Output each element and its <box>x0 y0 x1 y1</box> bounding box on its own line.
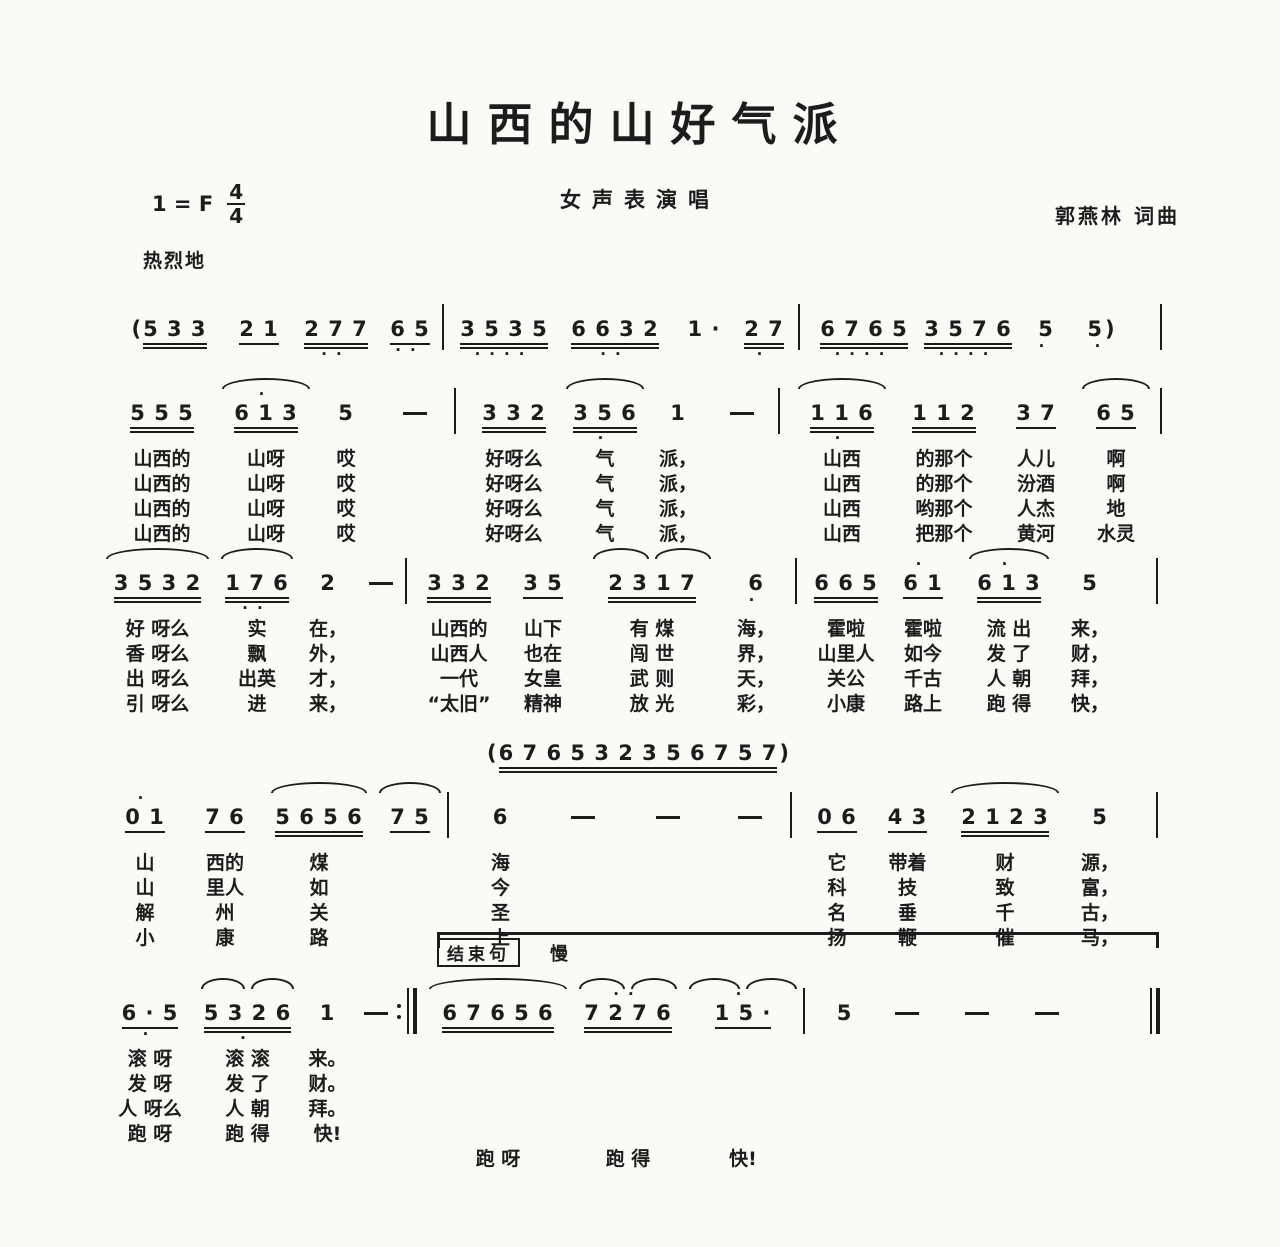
lyric-cell: 山呀 <box>216 497 316 522</box>
octave-dots-below <box>100 603 215 615</box>
ending-phrase-label: 结束句 <box>437 938 520 967</box>
digit-text: 7 5 <box>390 805 430 829</box>
digit-text: 7 2 7 6 <box>584 1001 671 1025</box>
lyric-cell <box>355 1147 397 1172</box>
bar-stroke <box>803 988 805 1034</box>
note-digits: 2 1 2 3 <box>945 805 1065 837</box>
note-group: ·6 1 3 <box>216 376 316 445</box>
lyric-cell: 致 <box>945 876 1065 901</box>
octave-dots-below <box>316 425 376 437</box>
lyric-cell: 才， <box>299 667 357 692</box>
octave-dots-above <box>355 989 397 1001</box>
octave-dots-above <box>499 559 587 571</box>
octave-dots-below <box>1065 829 1135 841</box>
digit-core: 1 1 2 <box>912 401 975 433</box>
lyric-cell: 山下 <box>499 617 587 642</box>
octave-dots-below <box>461 829 540 841</box>
lyric-cell: 气 <box>560 472 650 497</box>
digit-core: 5 <box>1092 805 1108 829</box>
octave-dots-above <box>804 793 870 805</box>
note-digits: 0 1 <box>105 805 185 833</box>
note-digits: 3 7 <box>996 401 1076 429</box>
note-group: 6 7 6 5···· <box>812 292 916 361</box>
octave-dots-below <box>710 819 790 831</box>
ending-phrase-bracket: 结束句慢 <box>437 932 1159 967</box>
octave-dots-above <box>294 305 378 317</box>
digit-core: 1 · <box>688 317 721 341</box>
digit-text: 0 6 <box>817 805 857 829</box>
tempo-marking: 热烈地 <box>143 246 206 273</box>
lyric-cell: 派， <box>650 522 706 547</box>
note-digits: 5 6 5 6 <box>265 805 373 837</box>
digit-text: 6 1 <box>903 571 943 595</box>
digit-text: 6 6 3 2 <box>571 317 658 341</box>
open-paren: ( <box>487 741 497 765</box>
lyric-cell: 彩， <box>717 692 795 717</box>
lyric-cell: 人儿 <box>996 447 1076 472</box>
note-digits: 5 <box>316 401 376 425</box>
lyric-cell: 快! <box>683 1147 803 1172</box>
lyric-cell <box>373 901 447 926</box>
slur-arc <box>221 548 293 559</box>
slur-row <box>996 376 1076 389</box>
octave-dots-below <box>468 433 560 445</box>
octave-dots-above <box>1072 305 1132 317</box>
octave-dots-below <box>224 345 294 357</box>
slur-row <box>376 376 454 389</box>
lyric-cell <box>942 1072 1012 1097</box>
digit-text: 4 3 <box>888 805 928 829</box>
digit-text: 6 7 6 5 3 2 3 5 6 7 5 7 <box>499 741 778 765</box>
digit-core: 2 3 1 7 <box>608 571 695 603</box>
octave-dots-above <box>552 305 678 317</box>
lyric-cell <box>706 447 778 472</box>
dash-note-group <box>540 780 625 831</box>
lyric-cell: 啊 <box>1076 447 1156 472</box>
octave-dots-above <box>1055 559 1125 571</box>
lyric-cell <box>397 1122 423 1147</box>
note-group: 1 1 6· <box>792 376 892 445</box>
barline-glyph <box>405 558 407 604</box>
beam-line <box>912 427 975 429</box>
lyric-cell: 带着 <box>870 851 945 876</box>
lyric-cell: 跑 呀 <box>105 1122 195 1147</box>
lyric-cell: 汾酒 <box>996 472 1076 497</box>
slur-row <box>1020 292 1072 305</box>
digit-core: 6 7 6 5 6 <box>442 1001 553 1033</box>
lyric-cell: 跑 得 <box>195 1122 300 1147</box>
lyric-cell <box>376 472 454 497</box>
lyric-cell: 山呀 <box>216 447 316 472</box>
lyric-cell: 人 朝 <box>195 1097 300 1122</box>
note-digits <box>540 805 625 819</box>
octave-dots-below <box>996 429 1076 441</box>
lyric-cell: 如 <box>265 876 373 901</box>
lyric-cell <box>683 1072 803 1097</box>
slur-row <box>108 376 216 389</box>
slur-arc <box>271 782 367 793</box>
octave-dots-below <box>678 341 730 353</box>
note-group: 1 7 6·· <box>215 546 299 615</box>
lyric-cell: 水灵 <box>1076 522 1156 547</box>
octave-dots-above: · <box>105 793 185 805</box>
digit-core: 5 <box>837 1001 853 1025</box>
lyric-cell <box>817 1047 872 1072</box>
lyric-cell <box>778 497 792 522</box>
lyric-cell <box>573 1097 683 1122</box>
note-group: 6 <box>461 780 540 841</box>
lyric-cell: 州 <box>185 901 265 926</box>
note-digits: 3 5 3 2 <box>100 571 215 603</box>
beam-line <box>275 831 362 833</box>
digit-core: 0 6 <box>817 805 857 833</box>
lyric-cell <box>872 1072 942 1097</box>
octave-dots-above <box>717 559 795 571</box>
digit-core: 2 1 2 3 <box>961 805 1048 837</box>
note-digits: 3 3 2 <box>468 401 560 433</box>
octave-dots-above <box>112 305 224 317</box>
lyric-cell <box>454 472 468 497</box>
bar-stroke <box>1160 304 1162 350</box>
lyric-cell <box>540 851 625 876</box>
octave-dots-above <box>792 389 892 401</box>
note-group: 6 6 5 <box>809 546 883 615</box>
octave-dots-above <box>560 389 650 401</box>
lyric-row-3: 解州关圣名垂千古， <box>105 901 1158 926</box>
note-digits: 1 · <box>678 317 730 341</box>
lyric-cell: 有 煤 <box>587 617 717 642</box>
note-digits: 5 5 5 <box>108 401 216 433</box>
octave-dots-below <box>683 1029 803 1041</box>
slur-row <box>355 976 397 989</box>
barline-glyph <box>1160 304 1162 350</box>
lyric-cell: 名 <box>804 901 870 926</box>
lyric-cell <box>355 1122 397 1147</box>
lyric-cell: 山 <box>105 876 185 901</box>
barline <box>442 292 456 350</box>
octave-dots-below <box>357 585 405 597</box>
slur-row <box>942 976 1012 989</box>
beam-line <box>814 597 877 599</box>
octave-dots-below: · <box>1020 341 1072 353</box>
lyric-cell: 源， <box>1065 851 1135 876</box>
repeat-barline <box>397 976 423 1034</box>
bar-stroke <box>1160 388 1162 434</box>
slur-row <box>587 546 717 559</box>
notation-line: ·0 17 65 6 5 67 560 64 32 1 2 35 <box>105 780 1158 849</box>
digit-core: 4 3 <box>888 805 928 833</box>
octave-dots-below: · <box>105 1029 195 1041</box>
lyric-cell: 千古 <box>883 667 963 692</box>
octave-dots-above <box>587 559 717 571</box>
slur-row <box>215 546 299 559</box>
note-digits: 1 <box>650 401 706 425</box>
digit-text: 3 3 2 <box>482 401 545 425</box>
lyric-cell: 飘 <box>215 642 299 667</box>
barline <box>1160 376 1162 434</box>
lyric-cell: 千 <box>945 901 1065 926</box>
octave-dots-below <box>872 1015 942 1027</box>
note-group: 6 7 6 5 6 <box>423 976 573 1045</box>
lyric-cell: 出 呀么 <box>100 667 215 692</box>
lyric-cell: 发 了 <box>963 642 1055 667</box>
octave-dots-above <box>105 989 195 1001</box>
octave-dots-below <box>945 837 1065 849</box>
digit-text: 5 3 3 <box>143 317 206 341</box>
digit-core: 5 <box>338 401 354 425</box>
octave-dots-below <box>376 415 454 427</box>
lyric-cell: 一代 <box>419 667 499 692</box>
digit-text: 2 7 <box>744 317 784 341</box>
slur-row <box>792 376 892 389</box>
lyric-cell: 滚 呀 <box>105 1047 195 1072</box>
lyric-cell: 富， <box>1065 876 1135 901</box>
octave-dots-below <box>625 819 710 831</box>
slur-row <box>299 546 357 559</box>
lyric-cell <box>300 1147 355 1172</box>
octave-dots-above: · <box>963 559 1055 571</box>
note-group: 1 · <box>678 292 730 353</box>
octave-dots-below <box>419 603 499 615</box>
octave-dots-above <box>423 989 573 1001</box>
note-group: 6· <box>717 546 795 607</box>
slur-row <box>892 376 996 389</box>
digit-core: 6 1 <box>903 571 943 599</box>
lyric-cell <box>790 876 804 901</box>
lyric-cell: 人 朝 <box>963 667 1055 692</box>
octave-dots-above <box>817 989 872 1001</box>
bar-stroke <box>1156 792 1158 838</box>
lyric-cell <box>683 1097 803 1122</box>
lyric-cell <box>357 667 405 692</box>
lyric-cell: 人杰 <box>996 497 1076 522</box>
digit-core: 6 <box>493 805 509 829</box>
barline-glyph <box>454 388 456 434</box>
lyric-cell <box>942 1122 1012 1147</box>
octave-dots-below <box>112 349 224 361</box>
slur-arc <box>746 978 797 989</box>
digit-core: 5 <box>1082 571 1098 595</box>
dash-note-group <box>376 376 454 427</box>
digit-text: 1 1 2 <box>912 401 975 425</box>
lyric-cell: 山西的 <box>108 522 216 547</box>
octave-dots-below <box>185 833 265 845</box>
barline <box>795 546 809 604</box>
lyric-cell <box>942 1047 1012 1072</box>
note-group: 7 6 <box>185 780 265 845</box>
lyric-cell: 地 <box>1076 497 1156 522</box>
octave-dots-below: · <box>730 349 798 361</box>
lyric-cell: 派， <box>650 472 706 497</box>
lyric-cell: 流 出 <box>963 617 1055 642</box>
lyric-cell: 引 呀么 <box>100 692 215 717</box>
octave-dots-above: · <box>216 389 316 401</box>
music-system-3: 3 5 3 21 7 6··23 3 23 52 3 1 76·6 6 5·6 … <box>100 546 1158 717</box>
barline-glyph <box>798 304 800 350</box>
lyric-cell <box>573 1122 683 1147</box>
digit-core: 3 3 2 <box>427 571 490 603</box>
octave-dots-above <box>488 729 788 741</box>
lyric-cell: 出英 <box>215 667 299 692</box>
digit-text: 3 5 7 6 <box>924 317 1011 341</box>
lyric-cell <box>405 617 419 642</box>
lyric-cell: 进 <box>215 692 299 717</box>
lyric-cell: 快， <box>1055 692 1125 717</box>
barline-glyph <box>778 388 780 434</box>
lyric-row-3: 山西的山呀哎好呀么气派，山西哟那个人杰地 <box>108 497 1162 522</box>
octave-dots-below <box>573 1033 683 1045</box>
meter-numerator: 4 <box>229 182 243 202</box>
digit-core: 6 1 3 <box>234 401 297 433</box>
lyric-cell <box>817 1122 872 1147</box>
octave-dots-below: · <box>792 433 892 445</box>
digit-text: 1 · <box>688 317 721 341</box>
beam-line <box>114 597 201 599</box>
note-group: 2 3 1 7 <box>587 546 717 615</box>
digit-core: 6 1 3 <box>977 571 1040 603</box>
beam-line <box>584 1027 671 1029</box>
digit-core <box>730 401 754 415</box>
note-group: 6 · 5· <box>105 976 195 1041</box>
lyric-cell: 天， <box>717 667 795 692</box>
lyric-cell: 里人 <box>185 876 265 901</box>
note-digits: 3 3 2 <box>419 571 499 603</box>
lyric-cell: 外， <box>299 642 357 667</box>
digit-text: 1 5 · <box>715 1001 772 1025</box>
barline-glyph <box>795 558 797 604</box>
lyric-cell <box>778 447 792 472</box>
bar-stroke <box>454 388 456 434</box>
slur-arc <box>951 782 1059 793</box>
octave-dots-above <box>730 305 798 317</box>
note-digits <box>942 1001 1012 1015</box>
slur-row <box>1065 780 1135 793</box>
lyric-cell <box>803 1072 817 1097</box>
octave-dots-above <box>1020 305 1072 317</box>
note-digits <box>706 401 778 415</box>
key-text: 1 = F <box>152 192 213 216</box>
lyric-cell: 今 <box>461 876 540 901</box>
octave-dots-below <box>883 599 963 611</box>
octave-dots-above <box>265 793 373 805</box>
octave-dots-above: · <box>683 989 803 1001</box>
digit-text: 3 5 <box>523 571 563 595</box>
octave-dots-below <box>587 603 717 615</box>
lyric-cell <box>373 851 447 876</box>
slur-row <box>468 376 560 389</box>
slur-row <box>456 292 552 305</box>
note-digits: 6 5 <box>1076 401 1156 429</box>
digit-text: 6 7 6 5 <box>820 317 907 341</box>
lyric-cell <box>803 1147 817 1172</box>
slur-row <box>870 780 945 793</box>
slur-arc <box>689 978 740 989</box>
composer-credit: 郭燕林 词曲 <box>1055 200 1180 229</box>
lyric-cell <box>405 667 419 692</box>
slur-row <box>1012 976 1082 989</box>
note-digits: 7 6 <box>185 805 265 833</box>
digit-text: 3 7 <box>1016 401 1056 425</box>
lyric-cell: 界， <box>717 642 795 667</box>
lyric-row-2: 山西的山呀哎好呀么气派，山西的那个汾酒啊 <box>108 472 1162 497</box>
lyric-cell <box>1012 1122 1082 1147</box>
octave-dots-below <box>1055 595 1125 607</box>
octave-dots-below: · <box>717 595 795 607</box>
slur-row <box>560 376 650 389</box>
lyric-cell: 霍啦 <box>883 617 963 642</box>
lyric-cell <box>1012 1047 1082 1072</box>
note-digits: 1 <box>300 1001 355 1025</box>
slur-row <box>872 976 942 989</box>
slur-row <box>357 546 405 559</box>
note-digits: 6 1 <box>883 571 963 599</box>
note-group: 5)· <box>1072 292 1132 353</box>
lyric-cell: 人 呀么 <box>105 1097 195 1122</box>
barline-glyph <box>803 988 805 1034</box>
octave-dots-below <box>108 433 216 445</box>
slur-row <box>817 976 872 989</box>
note-digits <box>376 401 454 415</box>
lyric-cell: 实 <box>215 617 299 642</box>
lyric-cell: 如今 <box>883 642 963 667</box>
slur-arc <box>251 978 295 989</box>
lyric-cell: 财 <box>945 851 1065 876</box>
note-digits: 2 3 1 7 <box>587 571 717 603</box>
lyric-cell <box>710 876 790 901</box>
lyric-cell: 关 <box>265 901 373 926</box>
digit-text: 5 <box>1082 571 1098 595</box>
close-paren: ) <box>779 741 789 765</box>
lyric-cell: 发 了 <box>195 1072 300 1097</box>
lyric-cell: 好呀么 <box>468 522 560 547</box>
digit-text: 6 7 6 5 6 <box>442 1001 553 1025</box>
lyric-cell: 哎 <box>316 497 376 522</box>
interlude-line: (6 7 6 5 3 2 3 5 6 7 5 7) <box>488 716 788 785</box>
note-group: 0 6 <box>804 780 870 845</box>
slur-row <box>945 780 1065 793</box>
octave-dots-above <box>224 305 294 317</box>
digit-core: 0 1 <box>125 805 165 833</box>
lyric-cell: 哎 <box>316 522 376 547</box>
digit-text: 1 1 6 <box>810 401 873 425</box>
octave-dots-above <box>357 559 405 571</box>
lyric-cell <box>872 1147 942 1172</box>
barline-glyph <box>447 792 449 838</box>
slur-row <box>809 546 883 559</box>
note-digits: 5 <box>817 1001 872 1025</box>
notation-line: 6 · 5·5 3 2 6·16 7 6 5 6··7 2 7 6·1 5 ·5 <box>105 976 1160 1045</box>
digit-text: 1 <box>320 1001 336 1025</box>
octave-dots-above <box>996 389 1076 401</box>
note-digits <box>872 1001 942 1015</box>
lyric-cell: 它 <box>804 851 870 876</box>
slur-row <box>488 716 788 729</box>
song-title: 山西的山好气派 <box>0 88 1280 153</box>
bar-stroke <box>447 792 449 838</box>
lyric-cell: 财， <box>1055 642 1125 667</box>
digit-text: 6 · 5 <box>122 1001 179 1025</box>
lyric-cell: 女皇 <box>499 667 587 692</box>
lyric-cell <box>625 851 710 876</box>
digit-text: 2 1 2 3 <box>961 805 1048 829</box>
lyric-cell: “太旧” <box>419 692 499 717</box>
lyric-cell <box>355 1097 397 1122</box>
octave-dots-above <box>945 793 1065 805</box>
lyric-cell <box>405 692 419 717</box>
lyric-cell <box>373 876 447 901</box>
slur-row <box>185 780 265 793</box>
octave-dots-above <box>461 793 540 805</box>
